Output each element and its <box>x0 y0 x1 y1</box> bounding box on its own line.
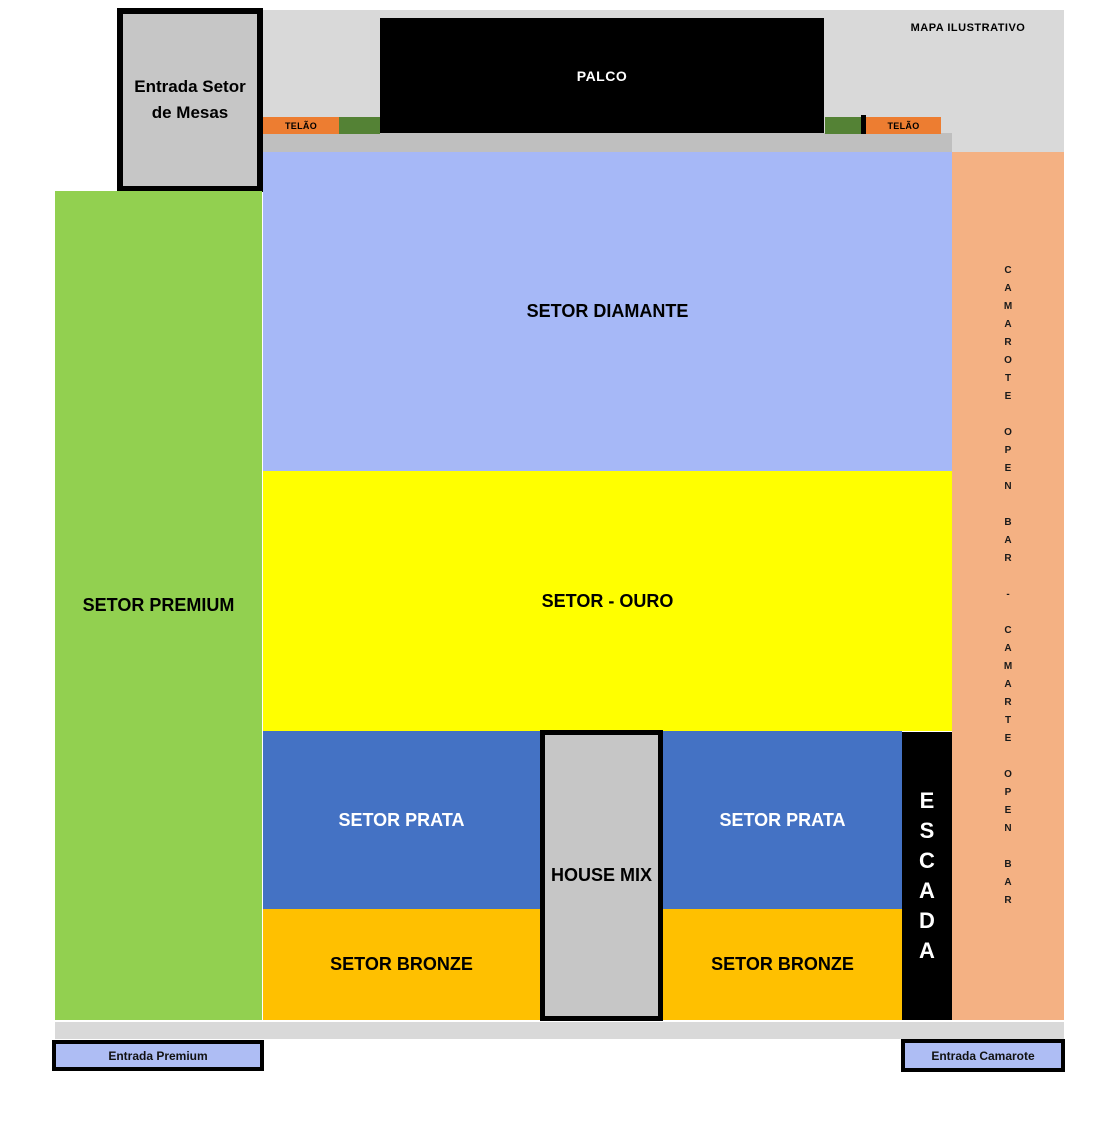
sector-premium: SETOR PREMIUM <box>55 191 262 1020</box>
entrance-mesas-label: Entrada Setor de Mesas <box>134 74 245 127</box>
sector-prata-right: SETOR PRATA <box>663 731 902 909</box>
venue-map: PALCO MAPA ILUSTRATIVO TELÃO TELÃO Entra… <box>0 0 1116 1146</box>
sector-bronze-left-label: SETOR BRONZE <box>330 954 473 975</box>
map-note: MAPA ILUSTRATIVO <box>903 22 1033 34</box>
house-mix-label: HOUSE MIX <box>551 865 652 886</box>
vertical-letter: - <box>1006 586 1009 604</box>
vertical-word: BAR <box>1004 514 1011 568</box>
vertical-letter: T <box>1004 370 1012 388</box>
stage-block: PALCO <box>380 18 824 133</box>
vertical-letter: S <box>920 816 935 846</box>
vertical-letter: E <box>1004 388 1012 406</box>
screen-left-label: TELÃO <box>285 121 317 131</box>
vertical-letter: P <box>1004 784 1012 802</box>
vertical-letter: A <box>1004 676 1012 694</box>
speaker-strip-left <box>339 117 380 134</box>
stairs-strip: ESCADA <box>902 732 952 1020</box>
screen-right: TELÃO <box>866 117 941 134</box>
sector-bronze-left: SETOR BRONZE <box>263 909 540 1020</box>
vertical-letter: R <box>1004 892 1011 910</box>
vertical-letter: E <box>1004 802 1012 820</box>
vertical-letter: M <box>1004 658 1012 676</box>
vertical-letter: C <box>919 846 935 876</box>
entrance-premium-label: Entrada Premium <box>108 1049 207 1063</box>
vertical-word: OPEN <box>1004 424 1012 496</box>
vertical-letter: R <box>1004 334 1012 352</box>
vertical-letter: N <box>1004 478 1012 496</box>
vertical-word: BAR <box>1004 856 1011 910</box>
vertical-letter: B <box>1004 514 1011 532</box>
screen-left: TELÃO <box>263 117 339 134</box>
entrance-camarote: Entrada Camarote <box>901 1039 1065 1072</box>
sector-premium-label: SETOR PREMIUM <box>83 595 235 616</box>
sector-prata-left: SETOR PRATA <box>263 731 540 909</box>
sector-prata-right-label: SETOR PRATA <box>719 810 845 831</box>
sector-bronze-right-label: SETOR BRONZE <box>711 954 854 975</box>
sector-ouro-label: SETOR - OURO <box>542 591 674 612</box>
vertical-letter: P <box>1004 442 1012 460</box>
vertical-letter: A <box>1004 640 1012 658</box>
vertical-letter: A <box>1004 280 1012 298</box>
vertical-word: CAMAROTE <box>1004 262 1012 406</box>
vertical-letter: R <box>1004 694 1012 712</box>
screen-right-label: TELÃO <box>888 121 920 131</box>
entrance-mesas-line1: Entrada Setor <box>134 74 245 100</box>
entrance-mesas: Entrada Setor de Mesas <box>117 8 263 192</box>
house-mix-booth: HOUSE MIX <box>540 730 663 1021</box>
vertical-letter: R <box>1004 550 1011 568</box>
front-of-stage-band <box>263 133 952 152</box>
sector-bronze-right: SETOR BRONZE <box>663 909 902 1020</box>
vertical-letter: O <box>1004 424 1012 442</box>
vertical-letter: A <box>919 876 935 906</box>
sector-diamante-label: SETOR DIAMANTE <box>527 301 689 322</box>
sector-prata-left-label: SETOR PRATA <box>338 810 464 831</box>
speaker-strip-right <box>825 117 861 134</box>
sector-camarote-open-bar: CAMAROTEOPENBAR-CAMARTEOPENBAR <box>952 152 1064 1020</box>
vertical-letter: O <box>1004 766 1012 784</box>
vertical-letter: M <box>1004 298 1012 316</box>
entrance-mesas-line2: de Mesas <box>134 100 245 126</box>
vertical-letter: N <box>1004 820 1012 838</box>
bottom-walkway-band <box>55 1022 1064 1039</box>
vertical-letter: A <box>1004 874 1011 892</box>
vertical-letter: E <box>1004 730 1012 748</box>
stage-label: PALCO <box>577 68 627 84</box>
vertical-letter: O <box>1004 352 1012 370</box>
vertical-letter: B <box>1004 856 1011 874</box>
vertical-letter: A <box>1004 316 1012 334</box>
vertical-letter: A <box>1004 532 1011 550</box>
vertical-letter: E <box>1004 460 1012 478</box>
vertical-word: - <box>1006 586 1009 604</box>
vertical-word: OPEN <box>1004 766 1012 838</box>
vertical-letter: C <box>1004 262 1012 280</box>
entrance-premium: Entrada Premium <box>52 1040 264 1071</box>
vertical-letter: T <box>1004 712 1012 730</box>
vertical-letter: E <box>920 786 935 816</box>
vertical-letter: D <box>919 906 935 936</box>
entrance-camarote-label: Entrada Camarote <box>931 1049 1034 1063</box>
vertical-letter: C <box>1004 622 1012 640</box>
sector-diamante: SETOR DIAMANTE <box>263 152 952 471</box>
vertical-word: CAMARTE <box>1004 622 1012 748</box>
vertical-letter: A <box>919 936 935 966</box>
sector-ouro: SETOR - OURO <box>263 471 952 731</box>
